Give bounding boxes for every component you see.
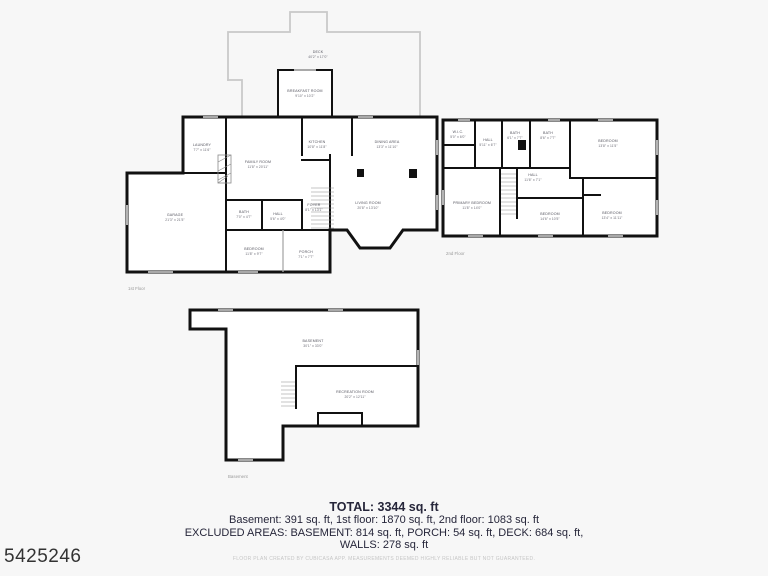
room-label-bedroom-tr-dims: 13'8" x 11'5": [598, 144, 618, 148]
second-floor-plan: W.I.C. 5'0" x 6'0" HALL 5'11" x 6'7" BAT…: [438, 110, 663, 260]
basement-caption: Basement: [228, 474, 249, 479]
room-label-bedroom1-dims: 11'8" x 9'7": [245, 252, 263, 256]
room-label-recreation-name: RECREATION ROOM: [336, 390, 374, 394]
room-label-bedroom1-name: BEDROOM: [244, 247, 264, 251]
room-label-porch-dims: 7'1" x 7'7": [298, 255, 314, 259]
room-label-bath2a-dims: 6'1" x 7'7": [507, 136, 523, 140]
room-label-bedroom-br-name: BEDROOM: [602, 211, 622, 215]
room-label-wic-dims: 5'0" x 6'0": [450, 135, 466, 139]
room-label-hall2-name: HALL: [483, 138, 493, 142]
area-summary: TOTAL: 3344 sq. ft Basement: 391 sq. ft,…: [0, 501, 768, 562]
room-label-garage-name: GARAGE: [167, 213, 184, 217]
first-floor-plan: DECK 40'2" x 17'0" BREAKFAST ROOM 9'10" …: [118, 5, 443, 295]
room-label-bedroom-mid-dims: 14'6" x 10'5": [540, 217, 560, 221]
mls-number-watermark: 5425246: [4, 546, 81, 568]
basement-footprint: [190, 310, 418, 460]
breakfast-room-footprint: [278, 70, 332, 116]
room-label-breakfast-name: BREAKFAST ROOM: [287, 89, 322, 93]
room-label-deck-dims: 40'2" x 17'0": [308, 55, 328, 59]
room-label-hall3-name: HALL: [528, 173, 538, 177]
room-label-breakfast-dims: 9'10" x 10'2": [295, 94, 315, 98]
room-label-basement-name: BASEMENT: [303, 339, 325, 343]
total-area-text: TOTAL: 3344 sq. ft: [0, 501, 768, 514]
room-label-porch-name: PORCH: [299, 250, 313, 254]
room-label-hall3-dims: 11'6" x 7'1": [524, 178, 542, 182]
room-label-kitchen-name: KITCHEN: [309, 140, 326, 144]
fireplace-feature: [409, 169, 417, 178]
room-label-hall1-name: HALL: [273, 212, 283, 216]
room-label-family-dims: 11'8" x 20'11": [248, 165, 270, 169]
floor-breakdown-text: Basement: 391 sq. ft, 1st floor: 1870 sq…: [0, 515, 768, 527]
room-label-primary-name: PRIMARY BEDROOM: [453, 201, 491, 205]
room-label-living-dims: 20'8" x 13'10": [357, 206, 379, 210]
room-label-basement-dims: 30'1" x 33'0": [303, 344, 323, 348]
room-label-bedroom-br-dims: 13'4" x 11'11": [602, 216, 624, 220]
room-label-foyer-name: FOYER: [307, 203, 320, 207]
room-label-deck-name: DECK: [313, 50, 324, 54]
room-label-laundry-dims: 7'7" x 11'6": [193, 148, 211, 152]
excluded-areas-text: EXCLUDED AREAS: BASEMENT: 814 sq. ft, PO…: [0, 528, 768, 540]
room-label-bath1-dims: 7'0" x 4'7": [236, 215, 252, 219]
room-label-primary-dims: 11'8" x 14'0": [462, 206, 482, 210]
room-label-bedroom-tr-name: BEDROOM: [598, 139, 618, 143]
room-label-hall2-dims: 5'11" x 6'7": [479, 143, 497, 147]
room-label-family-name: FAMILY ROOM: [245, 160, 271, 164]
second-floor-caption: 2nd Floor: [446, 251, 465, 256]
room-label-bath2b-dims: 8'6" x 7'7": [540, 136, 556, 140]
basement-plan: BASEMENT 30'1" x 33'0" RECREATION ROOM 2…: [178, 300, 428, 485]
room-label-kitchen-dims: 10'8" x 11'8": [307, 145, 327, 149]
room-label-hall1-dims: 5'6" x 4'0": [270, 217, 286, 221]
disclaimer-text: FLOOR PLAN CREATED BY CUBICASA APP. MEAS…: [0, 556, 768, 562]
room-label-recreation-dims: 20'2" x 12'11": [344, 395, 366, 399]
room-label-bath2a-name: BATH: [510, 131, 520, 135]
kitchen-feature: [357, 169, 364, 177]
room-label-dining-dims: 13'3" x 11'10": [376, 145, 398, 149]
room-label-laundry-name: LAUNDRY: [193, 143, 212, 147]
room-label-dining-name: DINING AREA: [375, 140, 400, 144]
room-label-wic-name: W.I.C.: [453, 130, 464, 134]
room-label-living-name: LIVING ROOM: [355, 201, 381, 205]
room-label-foyer-dims: 8'1" x 13'1": [305, 208, 323, 212]
room-label-bedroom-mid-name: BEDROOM: [540, 212, 560, 216]
chimney-feature: [518, 140, 526, 150]
room-label-garage-dims: 21'3" x 21'5": [165, 218, 185, 222]
first-floor-caption: 1st Floor: [128, 286, 146, 291]
walls-area-text: WALLS: 278 sq. ft: [0, 540, 768, 552]
room-label-bath1-name: BATH: [239, 210, 249, 214]
deck-step-walls: [228, 80, 242, 116]
room-label-bath2b-name: BATH: [543, 131, 553, 135]
